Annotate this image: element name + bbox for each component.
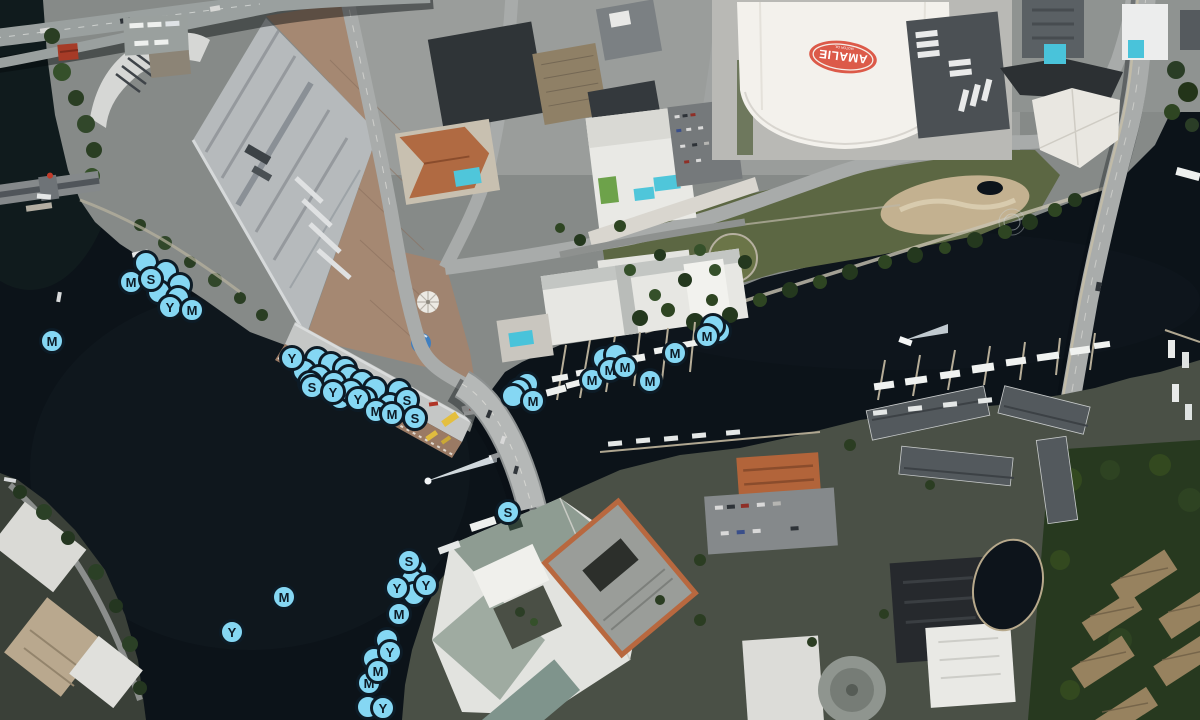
- map-marker-M[interactable]: M: [520, 388, 546, 414]
- map-marker-S[interactable]: S: [138, 266, 164, 292]
- map-marker-M[interactable]: M: [271, 584, 297, 610]
- map-marker-M[interactable]: M: [637, 368, 663, 394]
- map-marker-Y[interactable]: Y: [279, 345, 305, 371]
- marker-layer: MSYMMYSYYSMMSMMMMMMMSMYSYYMYMMY: [0, 0, 1200, 720]
- map-canvas: AMALIE MOTOR OIL: [0, 0, 1200, 720]
- map-marker-M[interactable]: M: [39, 328, 65, 354]
- map-marker-S[interactable]: S: [402, 405, 428, 431]
- map-marker-M[interactable]: M: [365, 658, 391, 684]
- map-marker-S[interactable]: S: [396, 548, 422, 574]
- map-marker-Y[interactable]: Y: [384, 575, 410, 601]
- map-marker-Y[interactable]: Y: [219, 619, 245, 645]
- map-marker-M[interactable]: M: [612, 354, 638, 380]
- map-marker-M[interactable]: M: [379, 401, 405, 427]
- map-marker-M[interactable]: M: [694, 323, 720, 349]
- map-marker-Y[interactable]: Y: [320, 379, 346, 405]
- map-marker-M[interactable]: M: [386, 601, 412, 627]
- map-marker-Y[interactable]: Y: [370, 695, 396, 720]
- map-marker-M[interactable]: M: [662, 340, 688, 366]
- map-marker-S[interactable]: S: [495, 499, 521, 525]
- map-marker-Y[interactable]: Y: [413, 572, 439, 598]
- map-marker-M[interactable]: M: [179, 297, 205, 323]
